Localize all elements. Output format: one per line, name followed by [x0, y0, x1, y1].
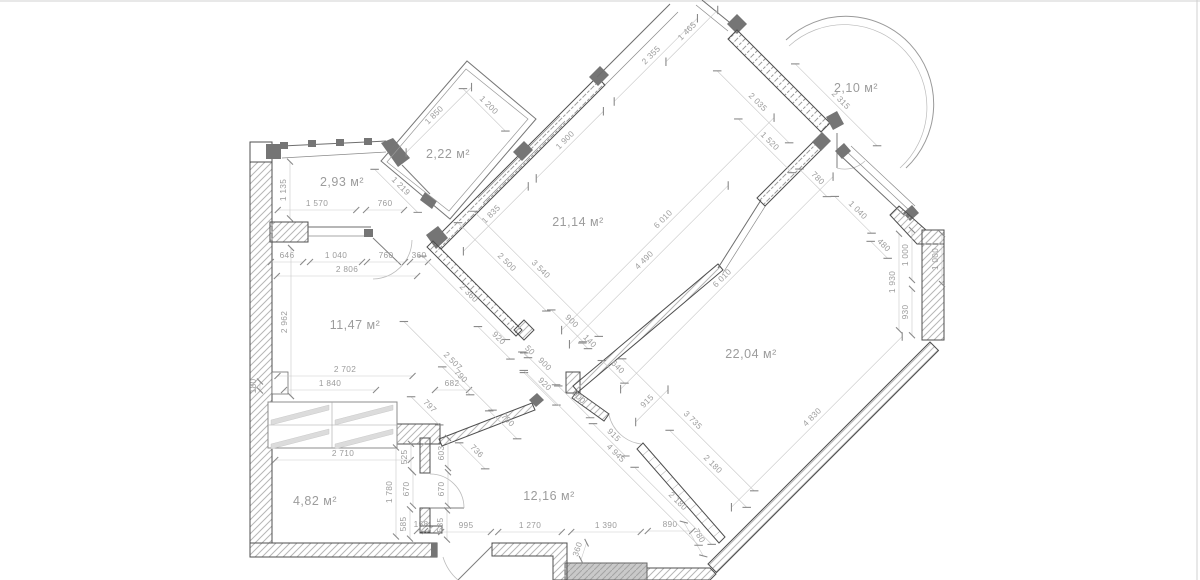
dimension: 360 — [569, 536, 591, 563]
dimension-label: 915 — [638, 392, 656, 410]
dimension: 360 — [407, 250, 431, 265]
dimension-label: 890 — [663, 519, 678, 529]
dimension-tick — [699, 552, 707, 560]
dimension: 1 135 — [278, 159, 293, 222]
dimension-label: 736 — [468, 442, 486, 460]
room-label: 4,82 м² — [293, 494, 337, 508]
dimension-label: 158 — [414, 519, 429, 529]
furniture-layer — [268, 402, 397, 449]
dimension-label: 480 — [875, 236, 893, 254]
dimension: 760 — [364, 250, 408, 265]
dimension-label: 930 — [900, 305, 910, 320]
dimension-label: 360 — [570, 540, 584, 557]
dimension: 915 — [625, 379, 672, 426]
dimension-label: 995 — [459, 520, 474, 530]
room-label: 22,04 м² — [725, 347, 777, 361]
dimension: 1 270 — [495, 520, 565, 535]
dimension-tick — [583, 539, 591, 547]
dimension-label: 915 — [605, 426, 623, 444]
walls-layer — [0, 0, 1200, 580]
dimension-label: 900 — [536, 355, 554, 373]
dimension: 1 840 — [281, 378, 379, 393]
wall-topright-band — [728, 30, 830, 132]
dimension-label: 603 — [436, 446, 446, 461]
entry-door-arc — [443, 557, 458, 580]
dimension-label: 682 — [445, 378, 460, 388]
dimension: 760 — [363, 198, 407, 213]
dimension: 1 040 — [831, 186, 883, 238]
dimension-label: 180 — [248, 379, 258, 394]
dimension: 585 — [435, 507, 450, 542]
dimension-label: 1 520 — [759, 129, 782, 152]
dimension: 2 355 — [604, 8, 702, 106]
dimension-label: 1 040 — [325, 250, 347, 260]
room-label: 12,16 м² — [523, 489, 575, 503]
floor-plan-drawing: 1 1351 5707606461 0407603602 8062 962180… — [0, 0, 1200, 580]
dimension-label: 3 540 — [530, 257, 553, 280]
wall-topright-end-block — [826, 111, 844, 130]
window-mullion — [336, 139, 344, 146]
window-mullion — [364, 138, 372, 145]
dimension-label: 2 962 — [279, 311, 289, 333]
dimension-label: 4 830 — [800, 405, 823, 428]
wall-divider-thin-b — [723, 205, 766, 273]
dimension-label: 1 200 — [478, 93, 501, 116]
window-2204-line-c — [851, 146, 915, 206]
dimension-label: 1 465 — [675, 19, 698, 42]
dimension-label: 1 040 — [847, 198, 870, 221]
dimension-label: 1 135 — [278, 179, 288, 201]
dimension: 2 035 — [713, 60, 800, 147]
dimension-label: 1 000 — [900, 244, 910, 266]
dimension: 6 010 — [610, 166, 837, 393]
dimension-label: 3 735 — [682, 408, 705, 431]
wall-bottom-right-return — [645, 568, 716, 580]
wall-divider-main — [573, 264, 723, 392]
room-label: 21,14 м² — [552, 215, 604, 229]
dimension-label: 797 — [421, 397, 439, 415]
wall-diagonal-exterior — [708, 342, 939, 573]
wall-divider-thin-a — [718, 200, 761, 268]
dimension: 525 — [399, 441, 414, 473]
room-label: 2,93 м² — [320, 175, 364, 189]
dimension: 2 507 — [400, 311, 503, 414]
dimension-label: 1 780 — [384, 481, 394, 503]
wall-corridor-west-diagonal — [439, 403, 535, 446]
dimension-label: 2 180 — [702, 452, 725, 475]
dimension-label: 1 000 — [930, 248, 940, 270]
dimension-label: 760 — [378, 198, 393, 208]
dimension: 3 735 — [618, 348, 765, 495]
room-label: 11,47 м² — [330, 318, 381, 332]
wall-2114-thin-cont-a — [597, 4, 670, 77]
dimension-label: 780 — [692, 527, 708, 545]
dimension-label: 780 — [809, 169, 827, 187]
dimension-label: 900 — [563, 312, 581, 330]
floor-plan-sheet: 1 1351 5707606461 0407603602 8062 962180… — [0, 0, 1200, 580]
dimension-label: 140 — [581, 332, 599, 350]
dimension: 995 — [438, 520, 494, 535]
dimension-label: 2 500 — [496, 250, 519, 273]
dimension: 2 180 — [630, 457, 722, 549]
dimension: 930 — [900, 286, 915, 339]
dimension: 1 465 — [655, 0, 722, 66]
wall-right-of-wardrobe — [397, 424, 440, 444]
window-mullion — [308, 140, 316, 147]
wall-left-corner-pier — [266, 144, 281, 159]
dimension-label: 2 806 — [336, 264, 358, 274]
dimension-label: 920 — [536, 375, 554, 393]
dimension: 2 806 — [274, 264, 420, 279]
dimension: 140 — [578, 332, 599, 353]
dimension-label: 670 — [401, 482, 411, 497]
dimension-label: 585 — [398, 517, 408, 532]
dimension-label: 646 — [280, 250, 295, 260]
dimension-label: 1 219 — [390, 174, 413, 197]
dimension-label: 2 702 — [334, 364, 356, 374]
door-jamb-293 — [364, 229, 373, 237]
dimension: 585 — [398, 506, 413, 541]
dimension: 50 — [518, 341, 539, 362]
dimension: 2 702 — [274, 364, 415, 379]
dimension-label: 6 010 — [651, 207, 674, 230]
dimension-label: 1 390 — [595, 520, 617, 530]
dimension-label: 1 850 — [422, 103, 445, 126]
dimension-label: 525 — [399, 450, 409, 465]
dimension-label: 1 930 — [887, 271, 897, 293]
wall-bottom-exterior — [250, 543, 437, 557]
wall-bottom-gray-band — [565, 563, 647, 580]
dimension-label: 1 270 — [519, 520, 541, 530]
dimension: 670 — [401, 469, 416, 509]
dimension-label: 920 — [490, 329, 508, 347]
wall-2114-corridor-corner — [514, 320, 534, 340]
room-label: 2,10 м² — [834, 81, 878, 95]
dimension-label: 760 — [379, 250, 394, 260]
entry-door-leaf — [458, 546, 492, 580]
dimension-label: 2 035 — [747, 90, 770, 113]
wall-left-niche — [272, 372, 288, 394]
dimension-label: 1 570 — [306, 198, 328, 208]
dimension: 1 780 — [384, 445, 399, 540]
dimension-label: 670 — [436, 482, 446, 497]
dimension: 2 710 — [272, 448, 414, 463]
wall-right-vertical — [922, 230, 944, 340]
dimension-label: 4 945 — [605, 441, 628, 464]
dimension-label: 360 — [412, 250, 427, 260]
dimension: 480 — [866, 231, 898, 263]
dimension: 797 — [407, 386, 450, 429]
dimension-label: 4 490 — [632, 248, 655, 271]
dimension: 1 040 — [307, 250, 365, 265]
dimension: 646 — [268, 250, 306, 265]
dimension-label: 2 710 — [332, 448, 354, 458]
wall-293-bottom — [270, 222, 308, 242]
dimension: 890 — [645, 519, 696, 534]
window-mullion — [280, 142, 288, 149]
dimension-label: 1 840 — [319, 378, 341, 388]
wall-482-right-upper — [420, 438, 430, 473]
window-top-inner-line — [282, 152, 386, 158]
wall-left-exterior — [250, 162, 272, 543]
dimension: 1 390 — [568, 520, 644, 535]
entry-door-jamb — [431, 543, 437, 557]
room-label: 2,22 м² — [426, 147, 470, 161]
wall-bottom-step — [492, 543, 567, 580]
